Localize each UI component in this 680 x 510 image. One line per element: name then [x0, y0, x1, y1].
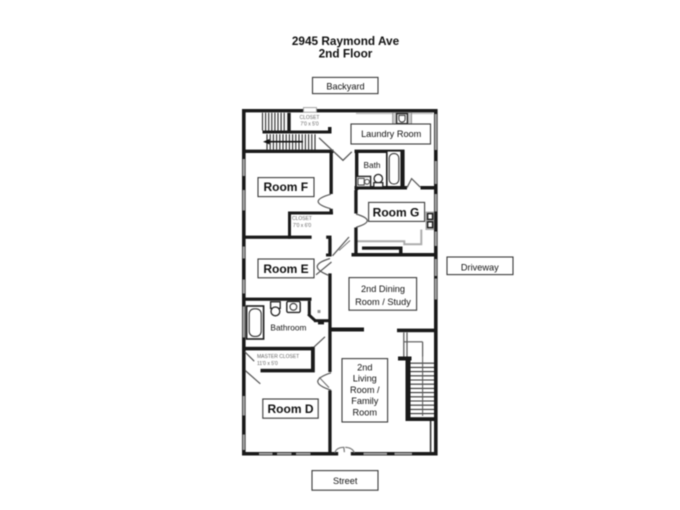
svg-text:Laundry Room: Laundry Room — [361, 129, 422, 139]
svg-text:Driveway: Driveway — [461, 262, 499, 272]
svg-text:11'0 x 5'0: 11'0 x 5'0 — [257, 361, 278, 367]
svg-text:Room G: Room G — [373, 205, 420, 219]
svg-text:Room D: Room D — [268, 402, 314, 416]
svg-text:Bathroom: Bathroom — [270, 323, 306, 333]
svg-text:2nd: 2nd — [357, 362, 372, 372]
svg-text:Room: Room — [353, 408, 378, 418]
svg-text:Room / Study: Room / Study — [355, 297, 411, 307]
svg-text:7'0 x 5'0: 7'0 x 5'0 — [300, 122, 319, 128]
svg-text:Room F: Room F — [263, 180, 308, 194]
svg-text:Room E: Room E — [263, 262, 308, 276]
svg-text:2nd Dining: 2nd Dining — [361, 284, 405, 294]
svg-text:Backyard: Backyard — [326, 82, 364, 92]
svg-text:Street: Street — [333, 476, 358, 486]
svg-text:7'0 x 6'0: 7'0 x 6'0 — [293, 223, 312, 229]
svg-text:Bath: Bath — [363, 160, 380, 170]
svg-text:Family: Family — [351, 396, 378, 406]
svg-text:CLOSET: CLOSET — [299, 115, 319, 121]
svg-text:Living: Living — [353, 374, 377, 384]
svg-text:CLOSET: CLOSET — [292, 216, 312, 222]
svg-text:Room /: Room / — [350, 385, 380, 395]
svg-text:2nd Floor: 2nd Floor — [319, 47, 373, 61]
svg-text:MASTER CLOSET: MASTER CLOSET — [257, 354, 299, 360]
